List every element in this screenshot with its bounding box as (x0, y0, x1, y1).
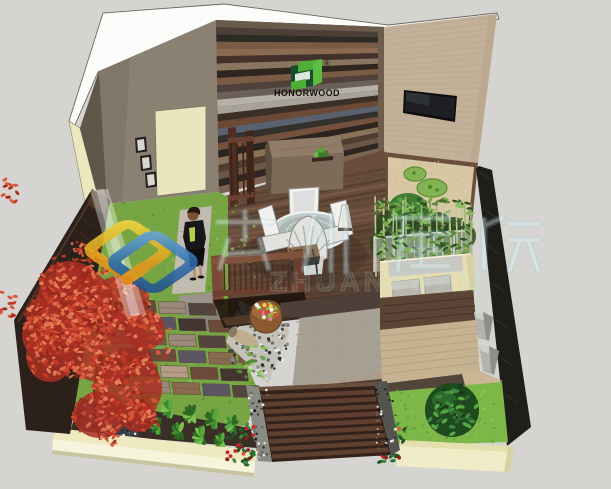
svg-text:HONORWOOD: HONORWOOD (274, 88, 340, 98)
svg-text:ZHUANYUAN: ZHUANYUAN (270, 266, 483, 297)
svg-text:®: ® (324, 59, 330, 68)
